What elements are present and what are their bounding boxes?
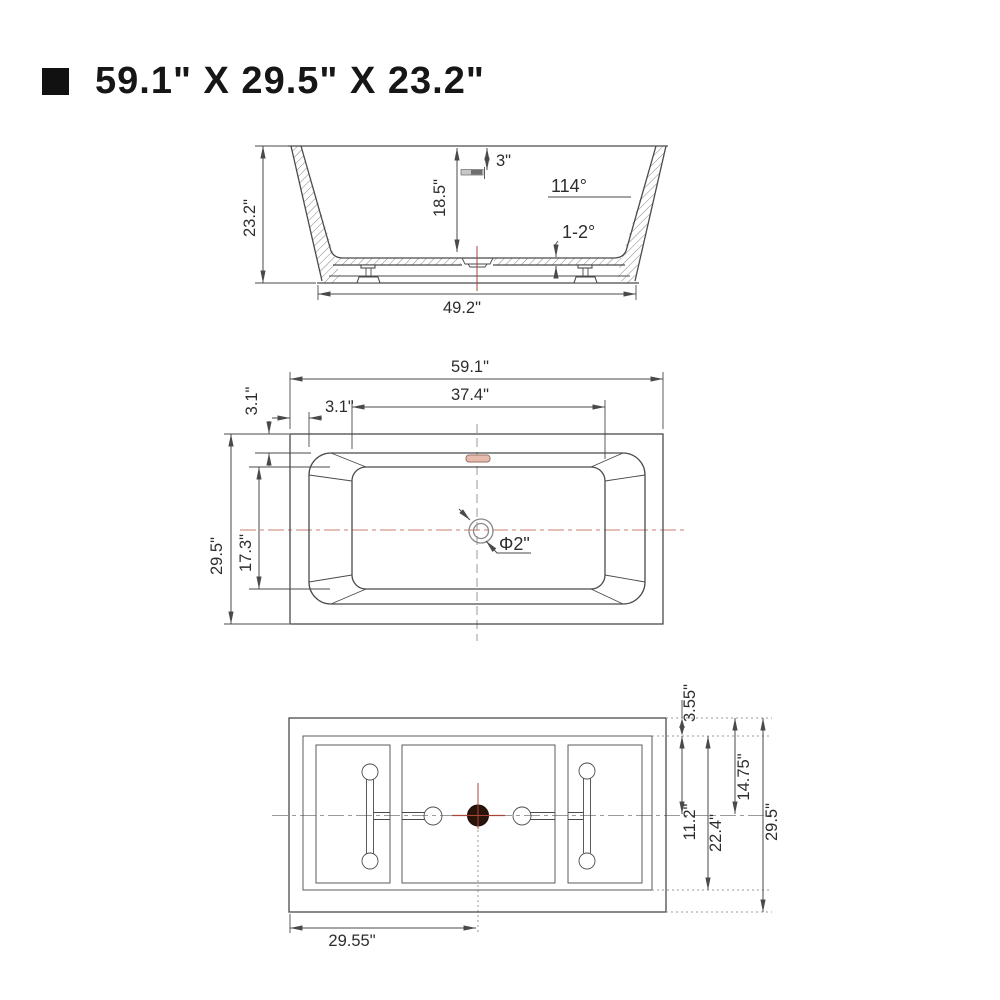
dim-floor-width: 17.3" [237, 467, 330, 589]
dim-label: 11.2" [681, 803, 699, 840]
dim-side-depth: 18.5" [431, 148, 457, 252]
left-wall-hatch [291, 146, 340, 283]
side-elevation-view: 23.2" 18.5" 3" 114° 1-2° [241, 146, 668, 317]
dim-label: 1-2° [562, 222, 595, 242]
dim-floor-length: 37.4" [352, 386, 605, 459]
dim-rim-left: 3.1" [272, 398, 354, 447]
bathtub-technical-drawing: 23.2" 18.5" 3" 114° 1-2° [0, 0, 1000, 1000]
dim-edge-to-center: 14.75" [735, 718, 753, 814]
dim-label: 49.2" [443, 299, 481, 317]
dim-label: 37.4" [451, 386, 489, 404]
bottom-view: 3.55" 11.2" 22.4" 14.75" 29.5" [272, 684, 781, 950]
left-bracket [362, 764, 390, 869]
bowl-floor [352, 467, 605, 589]
dim-bottom-width: 29.5" [763, 718, 781, 912]
dim-label: 3.55" [681, 684, 699, 722]
drawing-sheet: 59.1" X 29.5" X 23.2" [0, 0, 1000, 1000]
dim-inner-to-center: 11.2" [681, 736, 699, 840]
dim-label: 3" [496, 152, 511, 170]
dim-label: 22.4" [707, 814, 725, 852]
dim-label: 114° [551, 176, 587, 196]
drain-plan: Φ2" [459, 509, 531, 554]
foot-left [357, 265, 380, 283]
right-wall-hatch [617, 146, 666, 283]
dim-wall-angle: 114° [548, 176, 631, 197]
dim-label: 14.75" [735, 753, 753, 800]
overflow-icon [466, 455, 490, 462]
dim-label: 29.5" [763, 803, 781, 841]
dim-overflow-drop: 3" [487, 148, 511, 170]
drain-diameter-label: Φ2" [499, 534, 530, 554]
dim-label: 17.3" [237, 534, 255, 572]
dim-label: 3.1" [243, 386, 261, 415]
dim-label: 18.5" [431, 179, 449, 217]
overflow-fitting-icon [461, 167, 485, 179]
dim-label: 59.1" [451, 358, 489, 376]
dim-rim-top: 3.1" [243, 386, 311, 466]
dim-inner-width: 22.4" [707, 736, 725, 890]
left-panel [316, 745, 390, 883]
dim-label: 3.1" [325, 398, 354, 416]
dim-top-offset: 3.55" [679, 684, 699, 736]
dim-plan-width: 29.5" [208, 434, 289, 624]
dim-half-length: 29.55" [290, 914, 476, 950]
top-plan-view: Φ2" 59.1" 37.4" 3.1" [208, 358, 686, 641]
dim-label: 23.2" [241, 199, 259, 237]
dim-label: 29.55" [328, 932, 375, 950]
dim-label: 29.5" [208, 537, 226, 575]
foot-right [574, 265, 597, 283]
